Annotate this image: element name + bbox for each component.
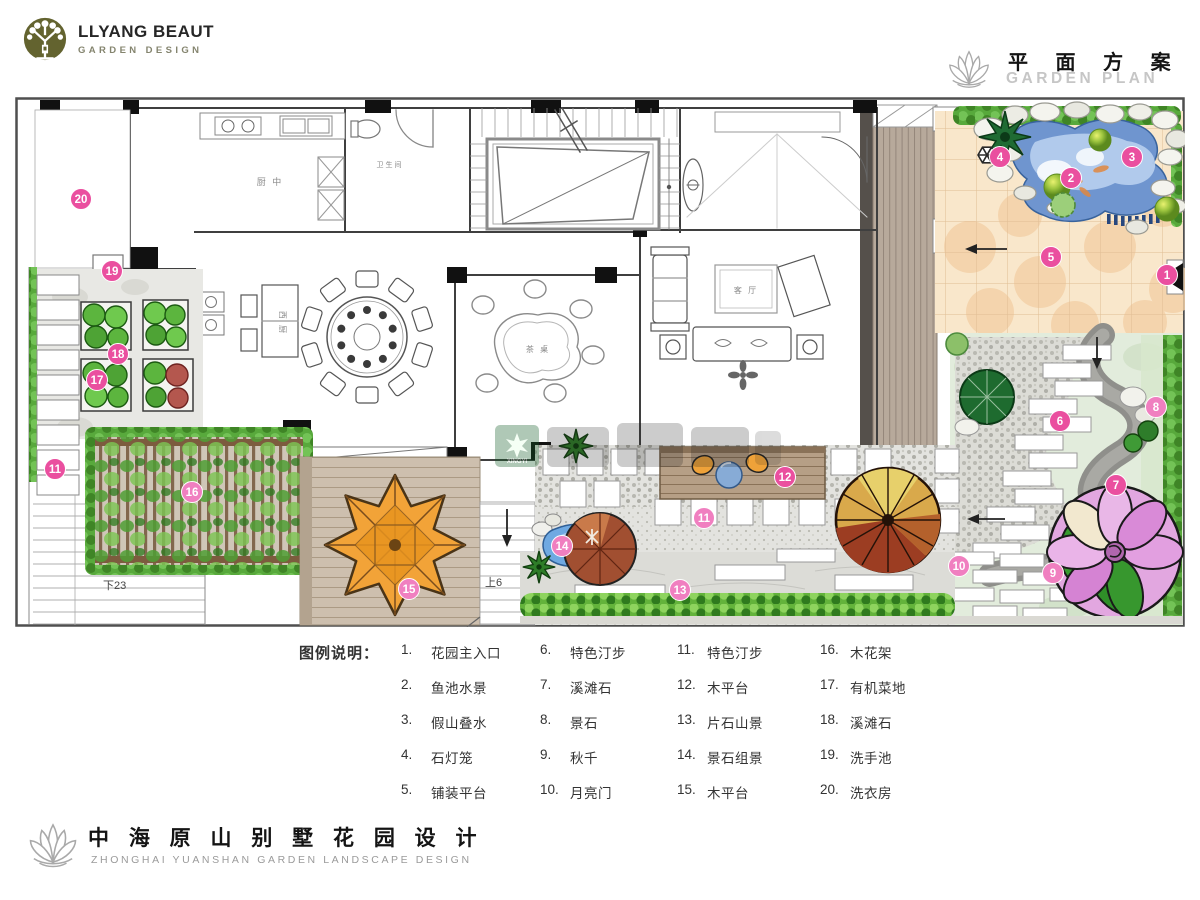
legend-item: 5.铺装平台	[401, 782, 540, 817]
plan-marker-1: 1	[1157, 265, 1178, 286]
plan-marker-8: 8	[1146, 397, 1167, 418]
room-label: 客 厅	[734, 285, 758, 295]
project-title-cn: 中 海 原 山 别 墅 花 园 设 计	[88, 822, 484, 852]
stair-label: 下23	[103, 580, 126, 592]
logo-name: LLYANG BEAUT	[78, 22, 214, 42]
svg-text:6: 6	[1057, 416, 1063, 428]
plan-marker-7: 7	[1106, 475, 1127, 496]
legend-item: 7.溪滩石	[540, 677, 677, 712]
plan-marker-11: 11	[45, 459, 66, 480]
legend-item: 2.鱼池水景	[401, 677, 540, 712]
svg-text:XINGYI: XINGYI	[507, 459, 528, 465]
svg-text:17: 17	[91, 375, 104, 387]
svg-text:3: 3	[1129, 152, 1135, 164]
pergola-wood-frame	[85, 427, 313, 575]
legend-item: 20.洗衣房	[820, 782, 980, 817]
legend-item: 6.特色汀步	[540, 642, 677, 677]
speaker-right	[797, 335, 823, 359]
central-staircase	[470, 108, 703, 229]
scallop-shrub	[1051, 193, 1075, 217]
plan-marker-2: 2	[1061, 168, 1082, 189]
svg-text:20: 20	[75, 194, 88, 206]
lotus-icon-footer	[26, 818, 80, 870]
spiky-bush	[523, 551, 555, 583]
company-logo: LLYANG BEAUT GARDEN DESIGN	[22, 16, 214, 62]
plan-marker-9: 9	[1043, 563, 1064, 584]
legend-item: 8.景石	[540, 712, 677, 747]
plan-svg: XINGYI 下23上6厨 中卫生间西 厨茶 桌客 厅 123456789101…	[15, 97, 1185, 627]
plan-marker-16: 16	[182, 482, 203, 503]
lotus-icon-top	[946, 46, 992, 90]
legend-item: 17.有机菜地	[820, 677, 980, 712]
svg-text:16: 16	[186, 487, 199, 499]
lawn-shrub	[946, 333, 968, 355]
sofa	[653, 255, 687, 323]
plan-marker-15: 15	[399, 579, 420, 600]
legend-item: 11.特色汀步	[677, 642, 820, 677]
red-tree	[564, 513, 636, 585]
koi-pond	[1011, 119, 1167, 226]
svg-text:19: 19	[106, 266, 119, 278]
svg-text:10: 10	[953, 561, 966, 573]
garden-plan-drawing: XINGYI 下23上6厨 中卫生间西 厨茶 桌客 厅 123456789101…	[15, 97, 1185, 627]
boulder	[955, 419, 979, 435]
plan-marker-19: 19	[102, 261, 123, 282]
svg-text:12: 12	[779, 472, 792, 484]
svg-text:8: 8	[1153, 402, 1160, 414]
legend-item: 13.片石山景	[677, 712, 820, 747]
room-label: 茶 桌	[526, 344, 550, 354]
tree-logo-icon	[22, 16, 68, 62]
plan-marker-10: 10	[949, 556, 970, 577]
dark-round-tree	[960, 370, 1014, 424]
plan-marker-3: 3	[1122, 147, 1143, 168]
bottom-walk	[520, 616, 1183, 624]
stair-label: 上6	[485, 576, 502, 589]
plan-marker-5: 5	[1041, 247, 1062, 268]
legend-item: 1.花园主入口	[401, 642, 540, 677]
legend-item: 10.月亮门	[540, 782, 677, 817]
plan-marker-18: 18	[108, 344, 129, 365]
plan-marker-20: 20	[71, 189, 92, 210]
legend-item: 3.假山叠水	[401, 712, 540, 747]
svg-text:11: 11	[698, 513, 711, 525]
svg-text:13: 13	[674, 585, 687, 597]
tv-cabinet	[693, 327, 791, 361]
legend-item: 14.景石组景	[677, 747, 820, 782]
legend-heading: 图例说明：	[299, 642, 379, 663]
svg-text:7: 7	[1113, 480, 1119, 492]
legend-item: 12.木平台	[677, 677, 820, 712]
plan-marker-14: 14	[552, 536, 573, 557]
room-label: 厨 中	[257, 176, 284, 187]
svg-text:1: 1	[1164, 270, 1171, 282]
legend-item: 16.木花架	[820, 642, 980, 677]
plan-marker-6: 6	[1050, 411, 1071, 432]
logo-subtitle: GARDEN DESIGN	[78, 45, 214, 56]
umbrella-pavilion	[325, 475, 465, 615]
plan-marker-13: 13	[670, 580, 691, 601]
svg-text:18: 18	[112, 349, 125, 361]
plan-marker-12: 12	[775, 467, 796, 488]
plan-marker-17: 17	[87, 370, 108, 391]
plan-marker-4: 4	[990, 147, 1011, 168]
svg-text:2: 2	[1068, 173, 1074, 185]
svg-text:4: 4	[997, 152, 1004, 164]
svg-text:15: 15	[403, 584, 416, 596]
svg-text:14: 14	[556, 541, 569, 553]
watermark: XINGYI	[495, 423, 781, 467]
plan-title-en: GARDEN PLAN	[1006, 70, 1158, 88]
speaker-left	[660, 335, 686, 359]
plan-marker-11: 11	[694, 508, 715, 529]
left-hedge-strip	[29, 267, 37, 482]
autumn-tree	[836, 468, 940, 573]
svg-text:11: 11	[49, 464, 62, 476]
legend-item: 19.洗手池	[820, 747, 980, 782]
svg-text:9: 9	[1050, 568, 1056, 580]
legend-item: 18.溪滩石	[820, 712, 980, 747]
room-label: 西 厨	[278, 311, 287, 335]
room-label: 卫生间	[377, 160, 404, 169]
legend-item: 9.秋千	[540, 747, 677, 782]
deck-with-umbrella	[300, 457, 480, 625]
legend-item: 15.木平台	[677, 782, 820, 817]
legend-item: 4.石灯笼	[401, 747, 540, 782]
project-title-en: ZHONGHAI YUANSHAN GARDEN LANDSCAPE DESIG…	[91, 854, 472, 866]
bottom-hedge	[520, 593, 955, 619]
svg-text:5: 5	[1048, 252, 1055, 264]
legend-list: 1.花园主入口2.鱼池水景3.假山叠水4.石灯笼5.铺装平台6.特色汀步7.溪滩…	[401, 642, 980, 817]
